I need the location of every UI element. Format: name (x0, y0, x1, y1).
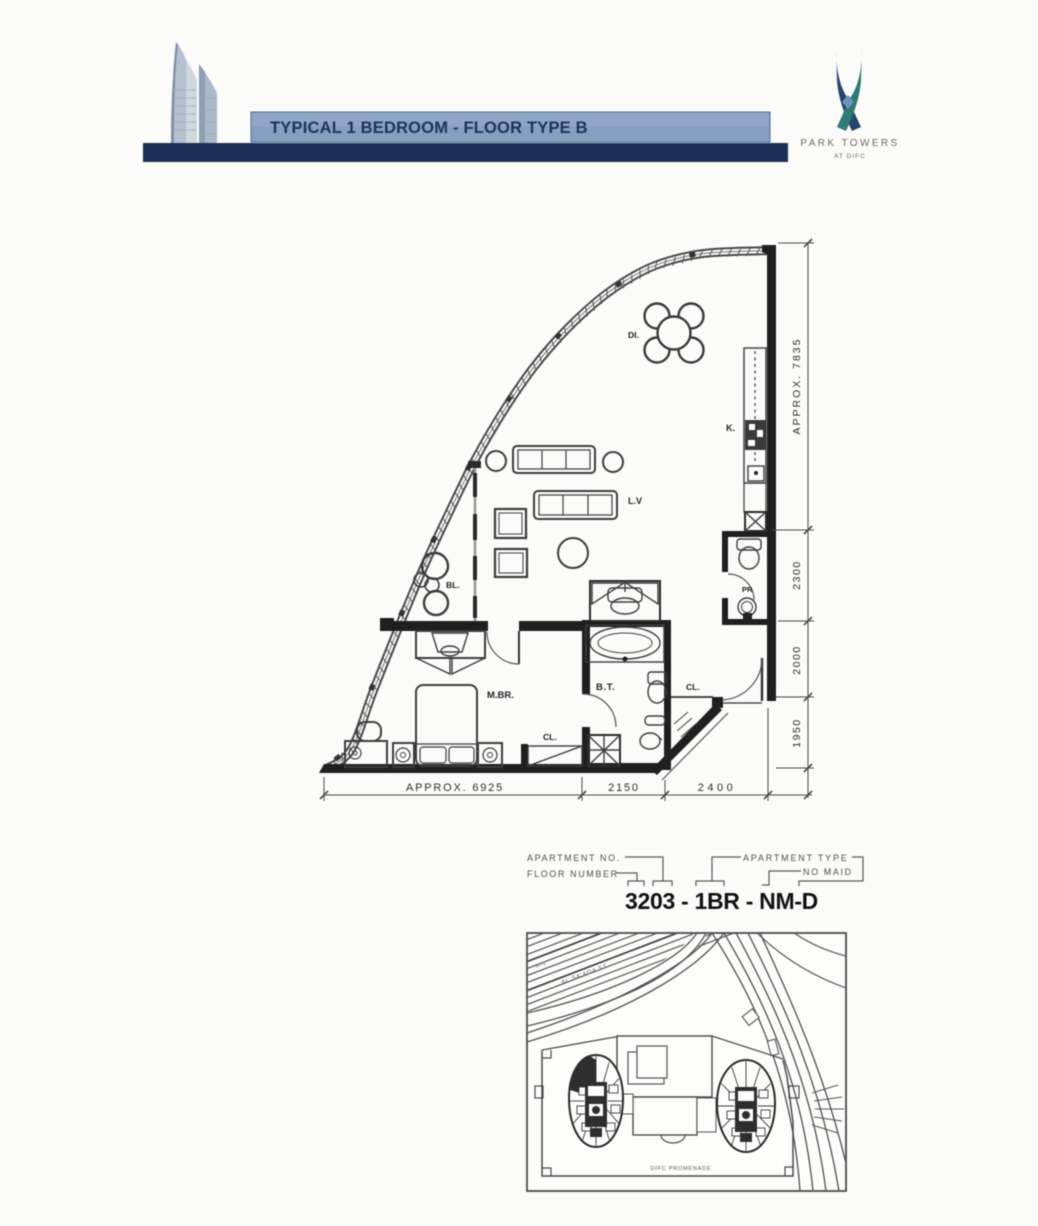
svg-text:FLOOR NUMBER: FLOOR NUMBER (527, 869, 619, 879)
svg-text:CL.: CL. (686, 682, 700, 692)
svg-text:DI.: DI. (628, 330, 639, 340)
svg-text:TYPICAL 1 BEDROOM - FLOOR TYPE: TYPICAL 1 BEDROOM - FLOOR TYPE B (270, 119, 588, 137)
svg-text:3203 - 1BR - NM-D: 3203 - 1BR - NM-D (625, 888, 818, 914)
svg-text:APPROX. 6925: APPROX. 6925 (406, 782, 504, 794)
svg-text:2400: 2400 (698, 782, 736, 794)
svg-text:K.: K. (726, 423, 735, 433)
svg-text:NO MAID: NO MAID (803, 867, 853, 877)
svg-text:2300: 2300 (791, 560, 803, 589)
svg-text:CL.: CL. (543, 732, 557, 742)
svg-text:APARTMENT NO.: APARTMENT NO. (527, 853, 621, 863)
svg-text:APPROX. 7835: APPROX. 7835 (791, 338, 803, 435)
svg-text:DIFC PROMENADE: DIFC PROMENADE (650, 1166, 711, 1172)
svg-text:L.V: L.V (628, 496, 642, 506)
svg-text:BL.: BL. (446, 580, 460, 590)
svg-text:1950: 1950 (791, 718, 803, 747)
svg-text:AT DIFC: AT DIFC (834, 153, 866, 160)
svg-text:B.T.: B.T. (596, 682, 615, 693)
svg-text:2150: 2150 (608, 782, 640, 794)
svg-text:M.BR.: M.BR. (487, 690, 514, 701)
svg-text:2000: 2000 (791, 645, 803, 674)
svg-text:PR: PR (742, 585, 753, 594)
svg-text:PARK TOWERS: PARK TOWERS (800, 138, 899, 149)
svg-text:APARTMENT TYPE: APARTMENT TYPE (743, 853, 849, 863)
